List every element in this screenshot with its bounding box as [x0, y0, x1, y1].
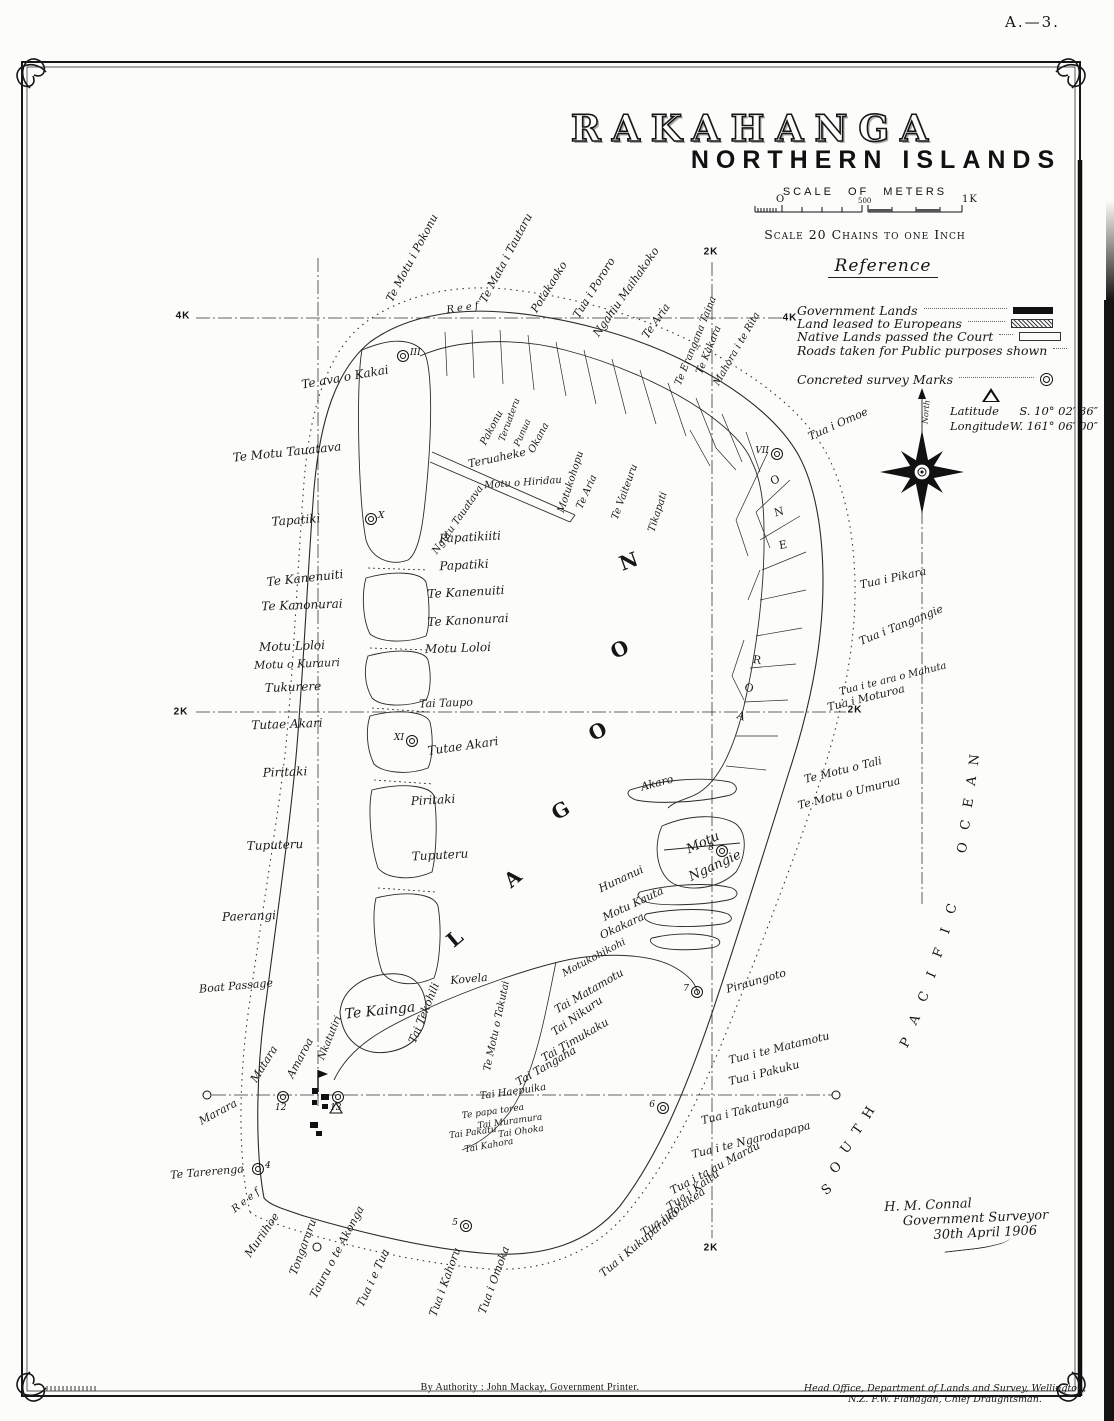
survey-mark: 12	[277, 1091, 289, 1103]
map-label: Kovela	[450, 971, 488, 987]
map-label: P	[897, 1035, 914, 1050]
map-label: Tauru o te Akonga	[307, 1204, 367, 1301]
survey-mark-number: 7	[683, 984, 689, 994]
map-label: Tai Kahora	[464, 1137, 514, 1155]
map-label: Tua i Kukuparako	[597, 1206, 681, 1280]
survey-mark-number: 5	[452, 1218, 458, 1228]
map-label: Nkatutiri	[316, 1014, 344, 1061]
map-label: I	[938, 926, 954, 936]
map-label: N	[773, 504, 786, 519]
map-label: O	[827, 1159, 845, 1177]
grid-label: 2K	[704, 1243, 719, 1254]
map-label: Tutae Akari	[427, 734, 500, 758]
map-label: L	[442, 924, 469, 952]
map-label: Te Aria	[639, 301, 672, 341]
map-label: Piritaki	[262, 764, 307, 780]
survey-mark: III	[397, 350, 409, 362]
scan-edge-artifact	[1104, 300, 1114, 1421]
survey-mark: 8	[716, 845, 728, 857]
map-label: Te ava o Kakai	[300, 362, 389, 391]
map-label: Te Motu i Pokonu	[383, 212, 440, 304]
grid-label: 2K	[848, 705, 863, 716]
map-label: O	[743, 681, 755, 696]
map-label: F	[930, 946, 947, 960]
map-label: Muriihoe	[242, 1210, 282, 1259]
survey-mark: 13	[332, 1091, 344, 1103]
map-label: Tutae Akari	[251, 716, 323, 732]
map-label: Te Motu Tauatava	[232, 439, 342, 464]
map-label: Potakaoko	[528, 259, 570, 315]
map-label: North	[920, 400, 931, 425]
map-label: I	[924, 970, 940, 981]
map-label: T	[849, 1122, 866, 1138]
survey-mark: 6	[657, 1102, 669, 1114]
map-label: N	[616, 546, 642, 575]
map-label: Tikapati	[646, 491, 669, 534]
map-label: Tua i e Tua	[354, 1247, 392, 1309]
map-label: U	[838, 1139, 857, 1157]
map-label: Motu o Hiridau	[484, 475, 562, 491]
traverse-point	[832, 1091, 841, 1100]
map-label: Tuputeru	[411, 847, 468, 864]
map-label: Motu Loloi	[259, 638, 325, 654]
map-label: Te Kanonurai	[427, 611, 509, 629]
map-label: Papatiki	[439, 557, 489, 574]
map-label: Piritaki	[410, 792, 455, 808]
survey-mark-number: 12	[275, 1103, 286, 1113]
traverse-point	[313, 1243, 322, 1252]
survey-mark-number: 8	[708, 843, 714, 853]
map-label: Paerangi	[222, 908, 276, 924]
survey-mark-number: VII	[755, 446, 769, 456]
map-label: Boat Passage	[199, 976, 274, 995]
survey-mark: 4	[252, 1163, 264, 1175]
survey-mark-number: 13	[330, 1103, 341, 1113]
map-label: Tai Haepuika	[479, 1082, 547, 1102]
map-label: Reef	[230, 1185, 264, 1215]
map-label: Tua i Omoka	[476, 1245, 512, 1316]
map-label: Tukurere	[265, 679, 322, 695]
map-label: Te Kanonurai	[261, 597, 343, 614]
map-label: S	[819, 1181, 835, 1198]
grid-label: 2K	[704, 247, 719, 258]
survey-mark-number: 6	[649, 1100, 655, 1110]
map-label: Amaroa	[284, 1036, 316, 1080]
map-label: Te Aria	[575, 473, 600, 511]
survey-mark-number: 4	[265, 1161, 271, 1171]
map-label: Te Kanenuiti	[266, 567, 344, 589]
survey-mark-number: X	[378, 511, 384, 521]
map-label: Motu Loloi	[425, 640, 491, 656]
map-sheet: A.—3. RAKAHANGA NORTHERN ISLANDS SCALE O…	[0, 0, 1114, 1421]
map-label: Papatikiiti	[439, 528, 501, 545]
map-label: Tapatiki	[271, 511, 321, 528]
survey-mark: 7	[691, 986, 703, 998]
survey-mark: X	[365, 513, 377, 525]
map-label: G	[547, 795, 575, 825]
survey-mark-number: III	[410, 348, 421, 358]
map-label: Tai Taupo	[419, 696, 473, 711]
printer-imprint: By Authority : John Mackay, Government P…	[380, 1382, 680, 1393]
map-label: Tua i Takatunga	[700, 1093, 790, 1127]
map-label: Te Kanenuiti	[427, 583, 505, 601]
map-label: Motu o Kurauri	[254, 656, 340, 672]
surveyor-signature: H. M. Connal Government Surveyor 30th Ap…	[884, 1192, 1071, 1253]
survey-mark: VII	[771, 448, 783, 460]
scan-edge-fade	[1106, 200, 1114, 300]
map-label: C	[915, 989, 933, 1005]
map-label: Tua i te Matamotu	[727, 1029, 830, 1067]
map-label: O	[607, 634, 634, 664]
map-label: Tua i Pikara	[859, 565, 928, 592]
map-label: Akaro	[639, 772, 674, 793]
office-imprint: Head Office, Department of Lands and Sur…	[800, 1383, 1090, 1405]
map-label: O	[954, 841, 971, 855]
map-label: A	[964, 775, 980, 786]
map-label: E	[961, 797, 977, 809]
survey-mark: XI	[406, 735, 418, 747]
map-label: Reef	[446, 300, 482, 316]
map-label: A	[499, 863, 527, 892]
survey-mark: 5	[460, 1220, 472, 1232]
map-label: A	[906, 1012, 924, 1027]
map-label: Tai Pakatu	[449, 1125, 498, 1142]
map-label: R	[752, 653, 762, 667]
map-label: E	[778, 538, 788, 552]
map-label: Te Kainga	[344, 999, 416, 1022]
map-label: Matara	[248, 1043, 281, 1084]
map-label: Tua i Tangangie	[857, 602, 945, 648]
map-label: Teruaheke	[467, 446, 527, 471]
map-label: Te Tarerenga	[170, 1162, 245, 1181]
grid-label: 2K	[174, 707, 189, 718]
survey-mark-number: XI	[394, 733, 404, 743]
map-label: Te Mata i Tautaru	[477, 211, 535, 305]
map-label: Te Vaiteuru	[610, 463, 640, 521]
map-label: Te Motu o Takutai	[482, 980, 512, 1072]
map-label: Hunanui	[596, 863, 645, 895]
map-label: N	[967, 754, 983, 767]
grid-label: 4K	[783, 313, 798, 324]
map-label: H	[860, 1104, 879, 1122]
map-label: O	[769, 472, 782, 487]
map-label: Tua i Kahoru	[427, 1246, 464, 1318]
map-label: O	[585, 716, 612, 746]
map-label: C	[943, 902, 960, 916]
map-label: A	[735, 709, 747, 724]
map-label: Piraungoto	[725, 966, 788, 995]
map-label: C	[958, 819, 975, 832]
map-label: Marara	[197, 1097, 240, 1128]
map-label: Tua i Omoe	[806, 405, 870, 443]
lithograph-stamp	[46, 1386, 96, 1391]
map-label: Tuputeru	[247, 837, 304, 853]
grid-label: 4K	[176, 311, 191, 322]
map-label: Mahora i te Rita	[712, 310, 763, 387]
traverse-point	[203, 1091, 212, 1100]
